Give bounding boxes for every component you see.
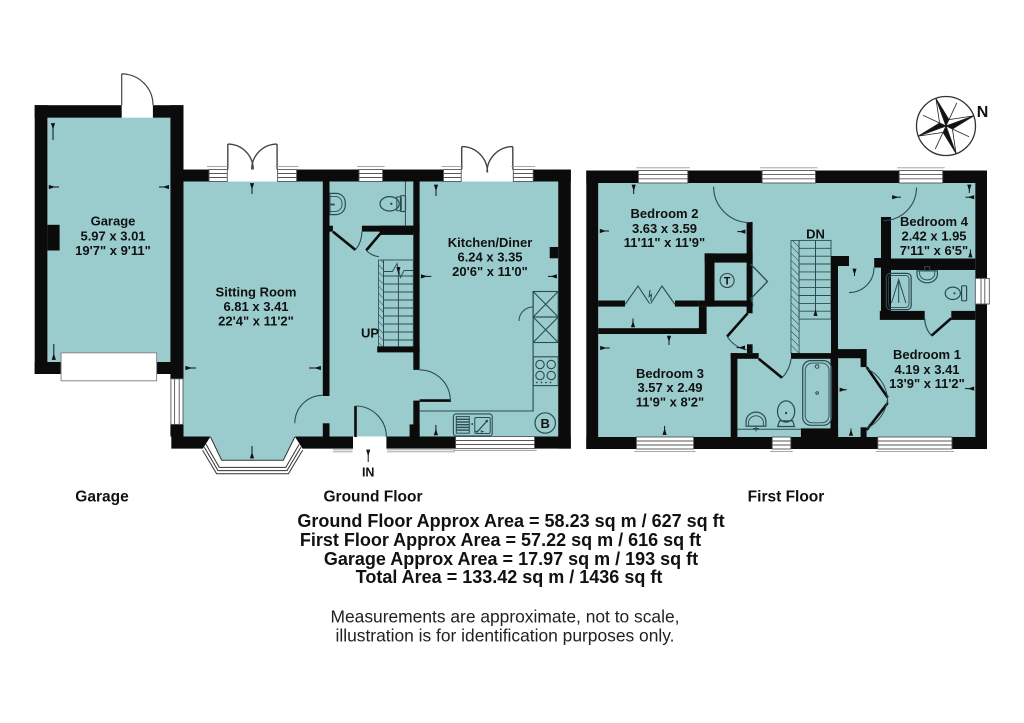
- svg-text:13'9" x 11'2": 13'9" x 11'2": [889, 376, 965, 391]
- svg-text:Measurements are approximate,: Measurements are approximate, not to sca…: [331, 607, 680, 627]
- svg-text:illustration is for identifica: illustration is for identification purpo…: [336, 626, 675, 646]
- svg-text:First Floor: First Floor: [748, 488, 825, 505]
- svg-text:7'11" x 6'5": 7'11" x 6'5": [900, 243, 968, 258]
- svg-text:N: N: [977, 104, 989, 121]
- svg-text:5.97 x 3.01: 5.97 x 3.01: [80, 229, 145, 244]
- svg-text:20'6" x 11'0": 20'6" x 11'0": [452, 264, 528, 279]
- svg-text:11'9" x 8'2": 11'9" x 8'2": [636, 395, 704, 410]
- svg-text:3.57 x 2.49: 3.57 x 2.49: [637, 380, 702, 395]
- svg-text:Bedroom 4: Bedroom 4: [900, 214, 969, 229]
- svg-text:2.42 x 1.95: 2.42 x 1.95: [901, 229, 966, 244]
- svg-text:4.19 x 3.41: 4.19 x 3.41: [894, 362, 959, 377]
- svg-text:DN: DN: [806, 227, 825, 242]
- svg-text:B: B: [541, 416, 550, 431]
- svg-text:3.63 x 3.59: 3.63 x 3.59: [632, 221, 697, 236]
- svg-text:Total Area = 133.42 sq m / 143: Total Area = 133.42 sq m / 1436 sq ft: [356, 567, 663, 587]
- svg-text:6.81 x 3.41: 6.81 x 3.41: [223, 299, 288, 314]
- svg-text:11'11" x 11'9": 11'11" x 11'9": [624, 235, 705, 250]
- svg-text:Kitchen/Diner: Kitchen/Diner: [448, 235, 533, 250]
- svg-text:Ground Floor: Ground Floor: [323, 488, 422, 505]
- svg-text:T: T: [724, 276, 731, 288]
- svg-text:Bedroom 3: Bedroom 3: [636, 366, 704, 381]
- svg-text:IN: IN: [362, 466, 375, 480]
- svg-text:UP: UP: [361, 326, 379, 341]
- svg-text:Garage: Garage: [75, 488, 129, 505]
- svg-text:Garage: Garage: [91, 214, 136, 229]
- svg-text:Garage Approx Area = 17.97 sq: Garage Approx Area = 17.97 sq m / 193 sq…: [324, 549, 698, 569]
- svg-text:Bedroom 1: Bedroom 1: [893, 347, 961, 362]
- svg-text:22'4" x 11'2": 22'4" x 11'2": [218, 314, 294, 329]
- svg-text:Ground Floor Approx Area = 58.: Ground Floor Approx Area = 58.23 sq m / …: [297, 511, 724, 531]
- svg-text:19'7" x 9'11": 19'7" x 9'11": [75, 243, 151, 258]
- svg-text:6.24 x 3.35: 6.24 x 3.35: [457, 250, 522, 265]
- svg-text:Bedroom 2: Bedroom 2: [631, 206, 699, 221]
- svg-text:First Floor Approx Area = 57.2: First Floor Approx Area = 57.22 sq m / 6…: [300, 530, 701, 550]
- svg-text:Sitting Room: Sitting Room: [216, 285, 297, 300]
